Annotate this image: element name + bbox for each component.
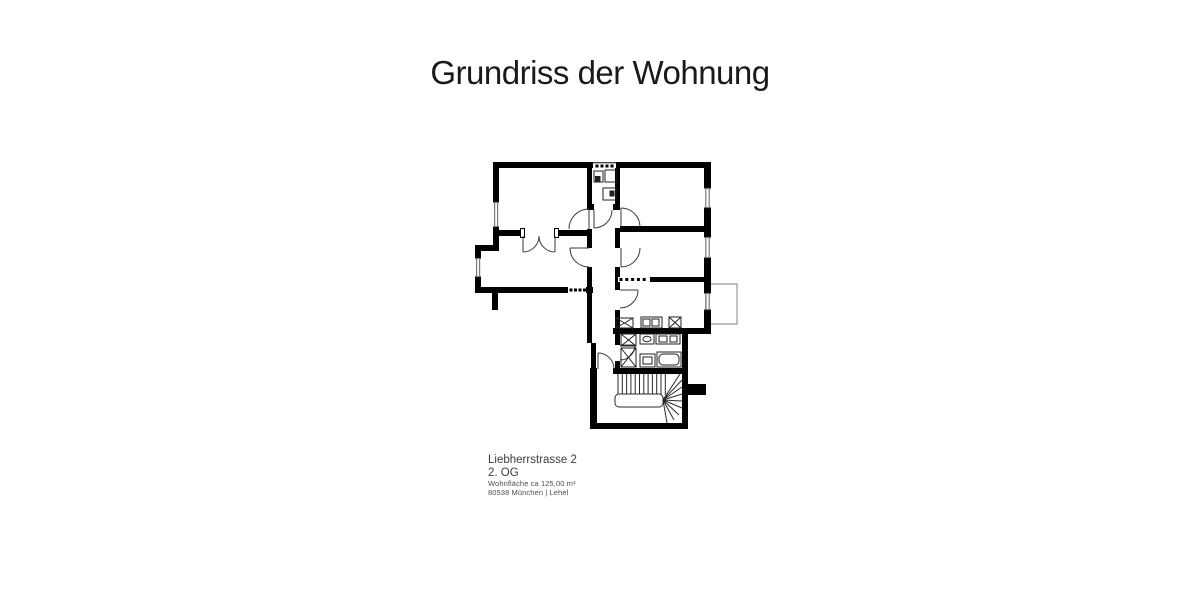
address-street: Liebherrstrasse 2	[488, 454, 577, 467]
kitchen-fixtures	[616, 317, 681, 328]
staircase	[615, 374, 682, 423]
stair-treads	[618, 374, 665, 395]
floorplan-drawing	[0, 0, 1200, 600]
stair-winders	[663, 374, 682, 423]
door-wc	[594, 210, 612, 228]
window-left-room	[493, 202, 499, 227]
window-balcony-door	[704, 293, 711, 310]
bathroom-fixtures	[621, 334, 681, 367]
window-right-middle	[704, 237, 711, 258]
window-right-top	[704, 188, 711, 208]
stair-landing	[615, 394, 663, 407]
kitchen-stove-icon	[669, 317, 681, 328]
shower-tray-icon	[640, 354, 655, 367]
bath-wardrobe2-icon	[621, 348, 636, 367]
washer-icon	[656, 334, 680, 344]
door-top-right-room	[621, 208, 640, 227]
address-city: 80538 München | Lehel	[488, 489, 577, 498]
door-middle-left-room	[570, 248, 589, 267]
door-kitchen	[620, 290, 638, 308]
kitchen-sink-icon	[641, 317, 662, 328]
double-door	[521, 229, 559, 253]
wc-fixtures	[594, 170, 617, 200]
window-bay	[475, 258, 481, 277]
bathtub-icon	[657, 352, 681, 367]
wc-sink-icon	[594, 171, 603, 182]
bath-wardrobe-icon	[621, 334, 636, 346]
door-top-left-room	[569, 209, 589, 229]
door-middle-right-room	[621, 248, 640, 267]
bath-basin-icon	[640, 334, 654, 344]
address-block: Liebherrstrasse 2 2. OG Wohnfläche ca 12…	[488, 454, 577, 498]
exterior-walls	[475, 162, 711, 334]
wc-toilet-icon	[603, 188, 616, 200]
door-entrance	[598, 353, 614, 369]
